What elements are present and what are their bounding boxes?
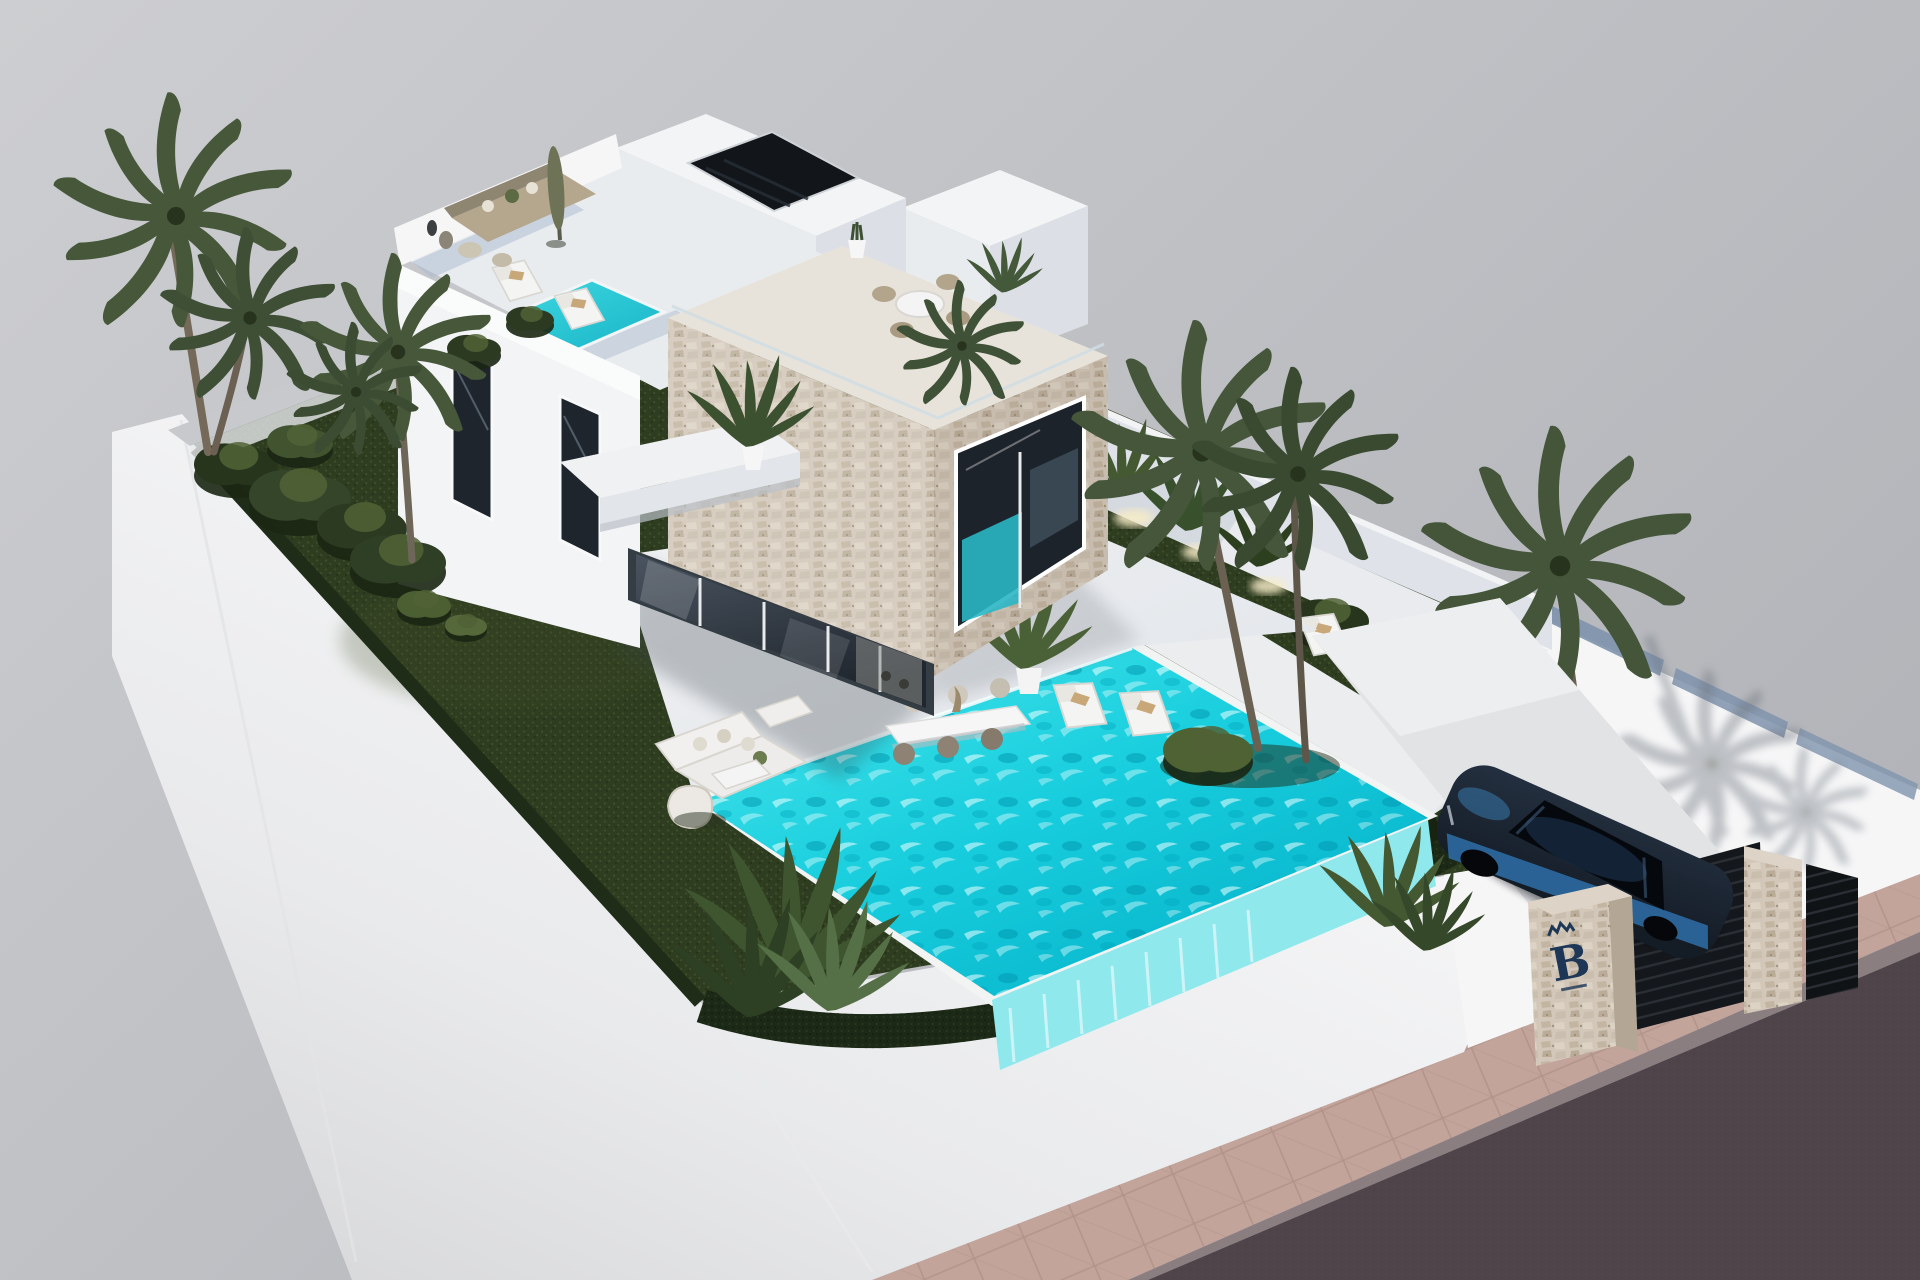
villa-render: 3D architectural rendering, aerial three… <box>0 0 1920 1280</box>
gate-pillar-branded: Stone gate pillar with brand logo B <box>1528 884 1638 1066</box>
render-canvas: 3D architectural rendering, aerial three… <box>0 0 1920 1280</box>
